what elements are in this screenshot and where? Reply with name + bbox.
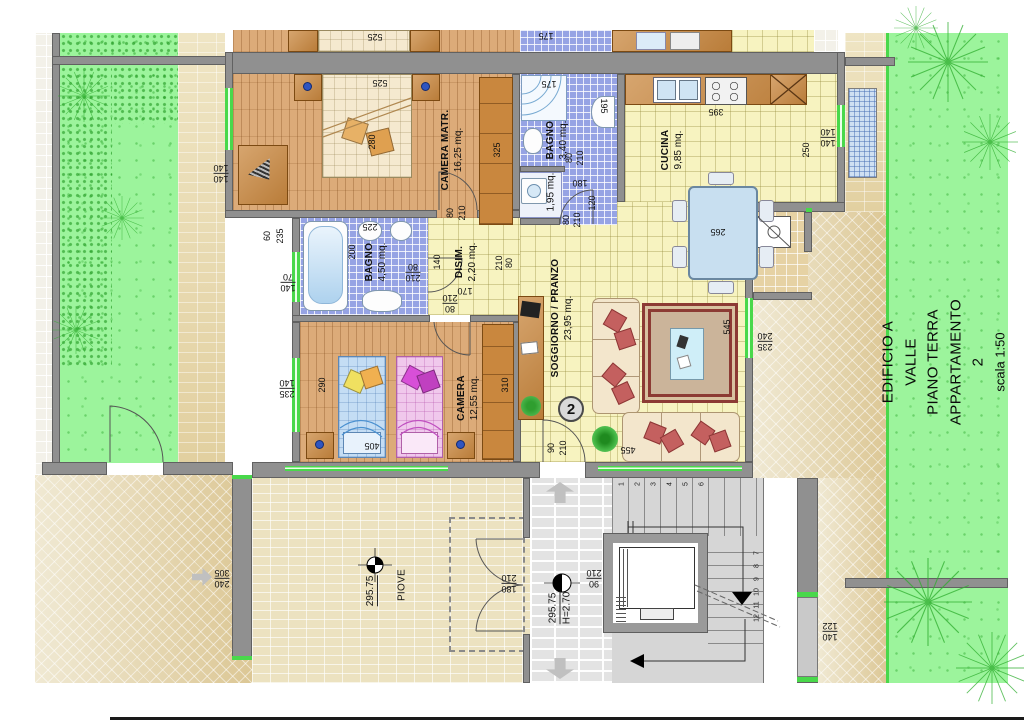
tread-number: 2 (635, 482, 642, 486)
dim-lav-120: 120 (587, 195, 597, 210)
room-name: SOGGIORNO / PRANZO (549, 259, 562, 378)
dim-bed-length: 280 (367, 134, 377, 149)
title-building: EDIFICIO A VALLE (877, 299, 922, 425)
dim-camera-405: 405 (364, 441, 379, 451)
dim-value: 90 (586, 578, 601, 589)
room-name: DISIM. (453, 243, 466, 282)
dim-mirror-shower: 175 (538, 31, 553, 41)
tread-number: 8 (754, 564, 761, 568)
dim-value: 235 (757, 341, 772, 352)
tread-number: 7 (754, 551, 761, 555)
dim-shower: 175 (541, 79, 556, 89)
dim-bagno2-door-80: 80 (564, 153, 574, 163)
chair-top (708, 172, 734, 185)
dim-bagno-depth: 200 (347, 244, 357, 259)
dim-cucina-395: 395 (708, 107, 723, 117)
sink-bagno-grande (362, 290, 402, 312)
green-cap-alcove (806, 208, 812, 212)
tread-number: 5 (683, 482, 690, 486)
apartment-number: 2 (567, 401, 575, 418)
window-camera-south (285, 466, 448, 471)
mirror-nightstand-right (410, 30, 440, 52)
dim-bagno2-door-210: 210 (575, 150, 585, 165)
dim-bagno2-195: 195 (599, 98, 609, 113)
dim-value: 140 (822, 631, 837, 642)
dim-lav-door-210: 210 (572, 212, 582, 227)
mirror-bath (520, 30, 612, 52)
dim-entrance-210: 210 (558, 440, 568, 455)
wall-step-west (225, 210, 437, 218)
dim-elevator-door: 90210 (586, 567, 601, 589)
dim-camera-290: 290 (317, 377, 327, 392)
elevator-counterweight (616, 596, 626, 622)
dim-value: 210 (442, 292, 457, 302)
title-unit: APPARTAMENTO 2 (945, 299, 990, 425)
mirror-nightstand-left (288, 30, 318, 52)
label-patio-level: 295.75 (364, 576, 378, 607)
label-camera: CAMERA 12,55 mq. (455, 375, 481, 421)
label-stair-level: 295.75 H=2.70 (547, 592, 574, 625)
chair-bottom (708, 281, 734, 294)
bathtub-inner (308, 226, 343, 304)
room-name: CUCINA (659, 130, 672, 171)
yard-left-paving (178, 33, 225, 463)
label-cucina: CUCINA 9,85 mq. (659, 130, 685, 171)
dim-value: 240 (757, 330, 772, 340)
green-cap-patio-top (232, 475, 252, 479)
elevator-car (619, 547, 695, 609)
dim-mirror-bed: 525 (367, 32, 382, 42)
dim-value: 140 (280, 282, 295, 293)
dim-value: 210 (586, 567, 601, 577)
title-floor: PIANO TERRA (922, 299, 945, 425)
room-area: 16,25 mq. (452, 110, 465, 191)
dim-value: 122 (822, 620, 837, 630)
dim-value: 70 (280, 271, 295, 281)
alcove-wall-bottom (753, 292, 812, 300)
kids-lamp-left (315, 440, 324, 449)
dim-window-soggiorno: 235240 (757, 330, 772, 352)
apartment-number-badge: 2 (558, 396, 584, 422)
dim-value: 80 (442, 303, 457, 314)
dim-disim-door-210: 210 (494, 255, 504, 270)
dim-value: 140 (820, 137, 835, 148)
hedge-left-edge (60, 66, 112, 366)
green-cap-patio-bot (232, 656, 252, 660)
dim-entrance-90: 90 (546, 443, 556, 453)
label-soggiorno: SOGGIORNO / PRANZO 23,95 mq. (549, 259, 575, 378)
room-area: 1,95 mq. (545, 173, 558, 212)
dim-wardrobe-master: 325 (492, 142, 502, 157)
alcove-wall-right (804, 212, 812, 252)
dim-value: 305 (214, 567, 229, 577)
window-soggiorno-east (745, 298, 753, 358)
patio-left-wall (232, 475, 252, 660)
right-path-top (845, 57, 895, 66)
stove-burners (708, 80, 744, 102)
dim-disim-170: 170 (457, 286, 472, 296)
window-soggiorno-south (598, 466, 742, 471)
room-name: CAMERA MATR. (439, 110, 452, 191)
kitchen-light-well (848, 88, 877, 178)
dim-wardrobe-camera: 310 (500, 377, 510, 392)
dim-gate: 240305 (214, 567, 229, 589)
dim-value: 180 (501, 583, 516, 594)
dim-value: 140 (279, 377, 294, 387)
tv-set (520, 301, 541, 318)
stair-window (797, 597, 818, 677)
garden-left-wall (52, 33, 60, 463)
green-cap-stairwin-bot (797, 677, 818, 682)
lamp-right (421, 82, 430, 91)
room-area: 2,20 mq. (466, 243, 479, 282)
room-area: 9,85 mq. (672, 130, 685, 171)
floor-plan-canvas: 2 (0, 0, 1024, 723)
dim-cucina-250: 250 (801, 142, 811, 157)
room-name: BAGNO (544, 121, 557, 160)
chair-right-2 (759, 246, 774, 268)
yard-bottom-wall-east (163, 462, 233, 475)
label-lavanderia: 1,95 mq. (545, 173, 558, 212)
dividing-wall (225, 52, 845, 74)
dim-door-camera: 80210 (442, 292, 457, 314)
dim-soggiorno-545: 545 (722, 319, 732, 334)
dim-disim-door-80: 80 (504, 258, 514, 268)
magazines (520, 341, 538, 355)
washing-machine-door (527, 184, 541, 198)
tread-number: 9 (754, 577, 761, 581)
stair-corridor (763, 478, 797, 683)
wall-bagno-grande-bottom-w (292, 315, 430, 322)
hedge-top-left (60, 33, 178, 57)
dim-lav-180: 180 (572, 178, 587, 188)
wall-lav-partition (520, 166, 565, 172)
dim-window-cucina: 140140 (820, 126, 835, 148)
chair-left-2 (672, 246, 687, 268)
dim-door-master-210: 210 (457, 205, 467, 220)
kitchen-sink-bowl-1 (657, 80, 676, 100)
dim-wall-60: 60 (262, 231, 272, 241)
label-bagno-grande: BAGNO 4,50 mq. (363, 243, 389, 282)
room-name: CAMERA (455, 375, 468, 421)
wall-bagno-grande-bottom-e (470, 315, 520, 322)
hedge-inner-left (112, 66, 178, 124)
wall-bagno2-bottom (520, 218, 560, 225)
kids-lamp-right (456, 440, 465, 449)
green-cap-stairwin-top (797, 592, 818, 597)
room-area: 23,95 mq. (562, 259, 575, 378)
sideboard-plant (521, 396, 541, 416)
title-block: EDIFICIO A VALLE PIANO TERRA APPARTAMENT… (877, 299, 1010, 425)
chair-left-1 (672, 200, 687, 222)
garden-path-wall (52, 56, 233, 65)
level-value: 295.75 (547, 592, 561, 625)
room-area: 4,50 mq. (376, 243, 389, 282)
tread-number: 3 (651, 482, 658, 486)
dim-window-master: 140140 (213, 162, 228, 184)
dim-value: 210 (501, 572, 516, 582)
dim-stair-window: 140122 (822, 620, 837, 642)
chair-right-1 (759, 200, 774, 222)
window-camera-matr (225, 88, 233, 150)
mirror-stove (670, 32, 700, 50)
bed-pink-foot (401, 432, 438, 454)
elevator-motor (640, 608, 674, 620)
dim-table-265: 265 (710, 227, 725, 237)
dim-bagno-width: 225 (362, 222, 377, 232)
kitchen-cabinet-x (770, 74, 807, 105)
dim-value: 240 (214, 578, 229, 589)
tread-number: 6 (699, 482, 706, 486)
patio-stair-wall-top (523, 478, 530, 538)
mirror-floor-yellow (732, 30, 814, 52)
wall-bagno2-east (617, 74, 625, 202)
wall-master-bagno2 (512, 74, 520, 210)
dim-value: 140 (213, 162, 228, 172)
patio-stair-wall-bot (523, 634, 530, 683)
mirror-bed (318, 30, 410, 52)
dim-disim-140: 140 (432, 254, 442, 269)
stair-flight-up (612, 478, 763, 536)
yard-bottom-wall-west (42, 462, 107, 475)
mirror-sink (636, 32, 666, 50)
tread-number: 11 (754, 601, 761, 608)
dim-door-bagno: 21080 (405, 261, 420, 283)
mirror-paving (814, 30, 838, 52)
bidet-bagno-grande (390, 221, 412, 241)
lamp-left (303, 82, 312, 91)
dim-value: 210 (405, 272, 420, 283)
dim-value: 140 (213, 173, 228, 184)
tread-number: 10 (754, 588, 761, 596)
level-height: H=2.70 (561, 592, 574, 625)
dim-value: 140 (820, 126, 835, 136)
label-camera-matr: CAMERA MATR. 16,25 mq. (439, 110, 465, 191)
tread-number: 4 (667, 482, 674, 486)
dim-wall-235: 235 (275, 228, 285, 243)
right-path-bottom (845, 578, 1008, 588)
title-scale: scala 1:50 (990, 299, 1011, 425)
dim-patio-doors: 180210 (501, 572, 516, 594)
label-piove: PIOVE (396, 569, 409, 601)
floor-plant (592, 426, 618, 452)
dim-window-bagno: 14070 (280, 271, 295, 293)
wc-bagno-piccolo (523, 128, 543, 154)
page-edge-line (110, 717, 1024, 720)
room-name: PIOVE (396, 569, 409, 601)
tread-number: 1 (619, 482, 626, 486)
dim-window-camera: 235140 (279, 377, 294, 399)
label-disimpegno: DISIM. 2,20 mq. (453, 243, 479, 282)
dim-soggiorno-455: 455 (620, 445, 635, 455)
dim-master-bed-width: 525 (372, 78, 387, 88)
dim-value: 235 (279, 388, 294, 399)
room-name: BAGNO (363, 243, 376, 282)
dim-value: 80 (405, 261, 420, 271)
dim-door-master-80: 80 (445, 208, 455, 218)
room-area: 12,55 mq. (468, 375, 481, 421)
kitchen-sink-bowl-2 (679, 80, 698, 100)
dim-lav-door-80: 80 (561, 215, 571, 225)
window-cucina (837, 105, 845, 147)
level-value: 295.75 (364, 576, 378, 607)
tread-number: 12 (754, 614, 761, 622)
